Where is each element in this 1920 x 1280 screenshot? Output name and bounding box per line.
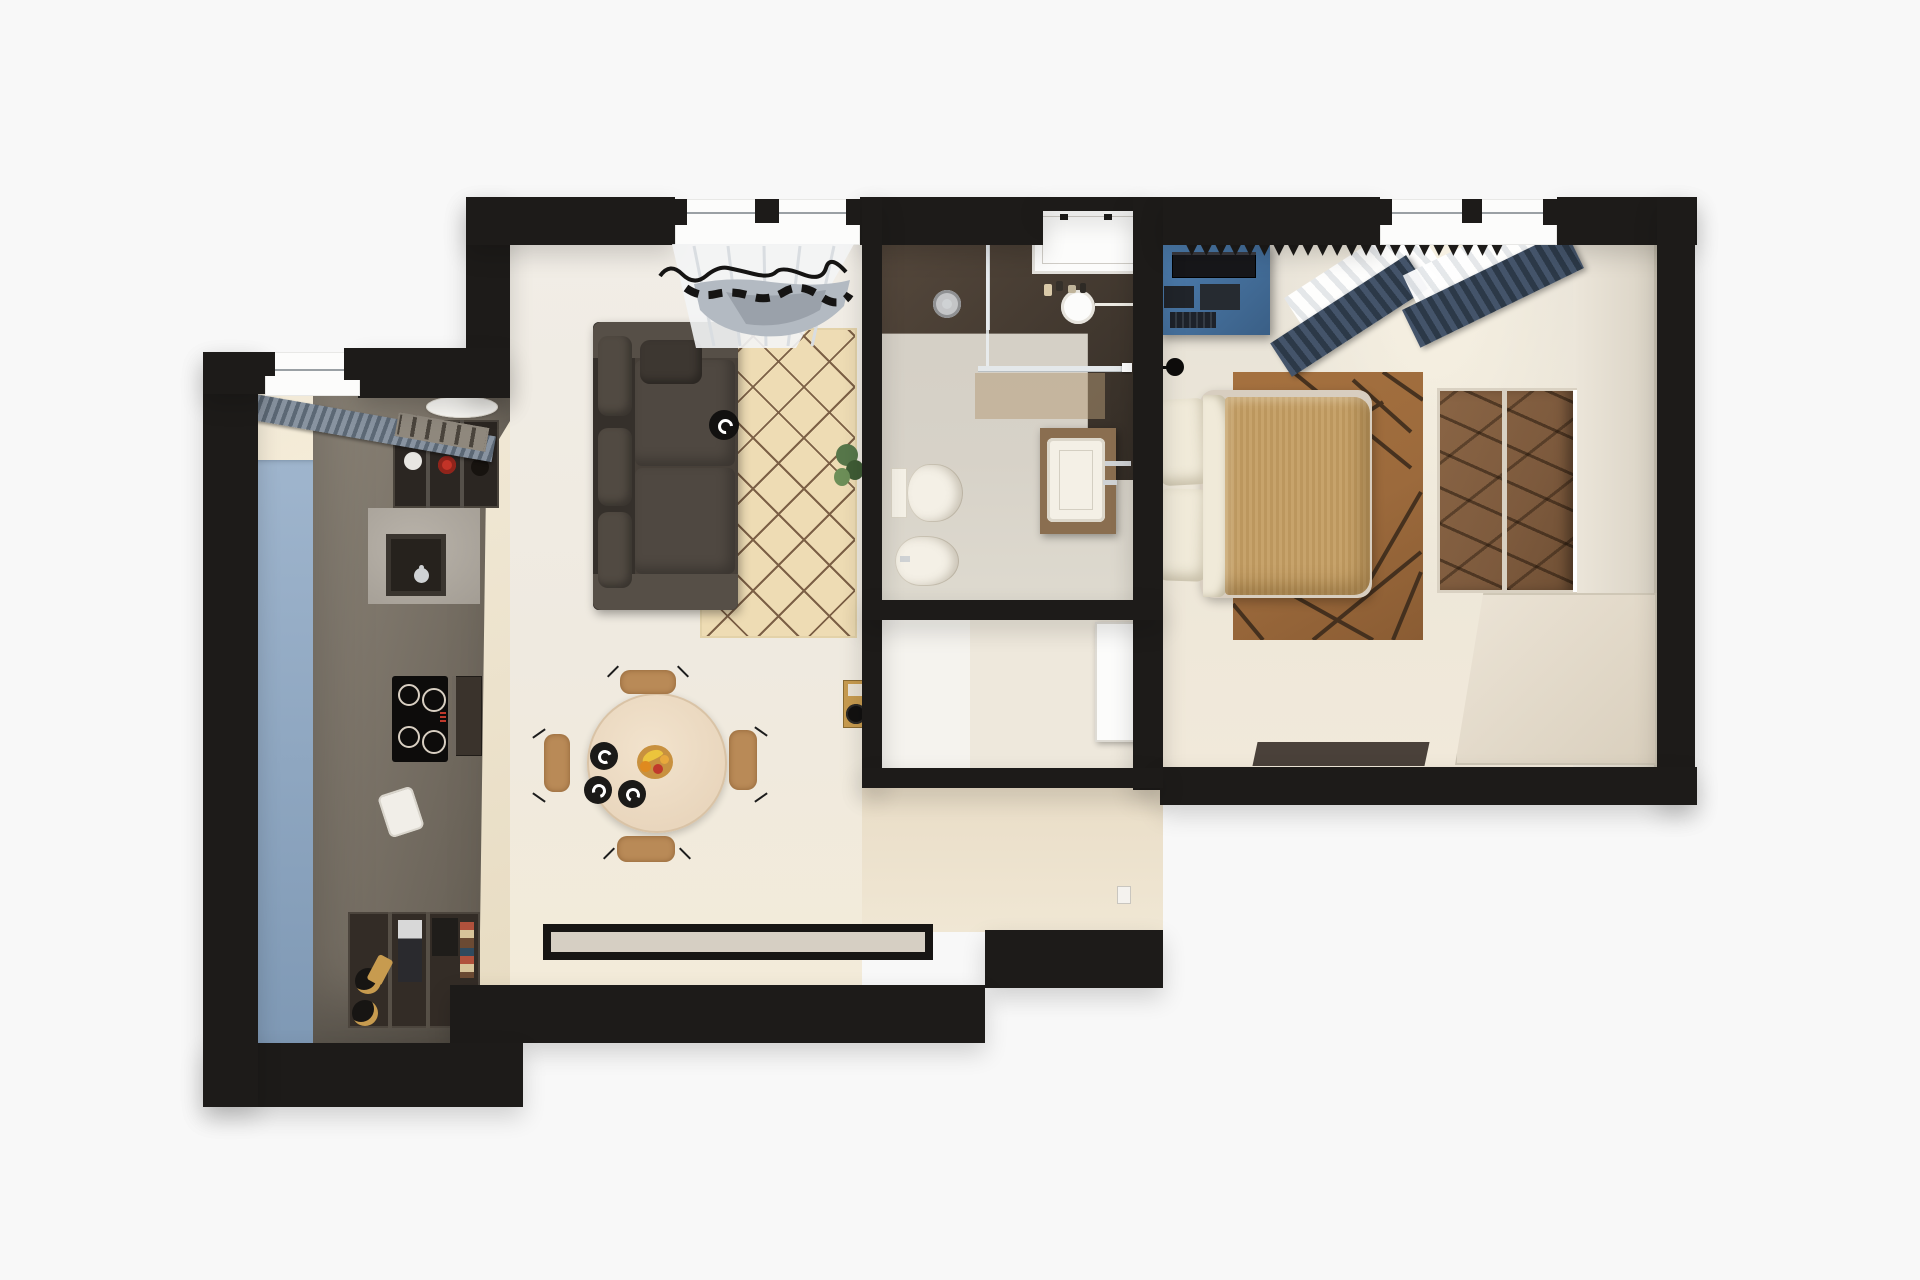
wall-hall-bottom: [985, 930, 1163, 988]
wall-living-bottom: [450, 985, 985, 1043]
window-mullion-notch: [1462, 199, 1482, 223]
small-appliance: [432, 918, 458, 956]
living-window-curtain: [636, 236, 886, 354]
mirror-edge-highlight: [1573, 390, 1577, 592]
cosmetic-jar: [1068, 285, 1076, 293]
orange: [640, 761, 651, 772]
window-jamb-notch: [1380, 199, 1392, 225]
wall-kitchen-top-a: [203, 352, 265, 394]
window-jamb-notch: [1543, 199, 1557, 225]
coffee-machine: [398, 920, 422, 982]
hallway-floor: [862, 788, 1163, 932]
wine-bottle-top: [352, 1000, 378, 1026]
toilet: [907, 464, 963, 522]
basin: [1047, 438, 1105, 522]
dining-chair-north: [620, 670, 676, 694]
induction-cooktop: [392, 676, 448, 762]
bidet-faucet: [900, 556, 910, 562]
wall-bedroom-right: [1657, 197, 1695, 805]
floor-plan-stage: ▼▼▼▼: [0, 0, 1920, 1280]
window-jamb-notch: [846, 199, 860, 225]
kitchen-sink: [386, 534, 446, 596]
runner-rug: [543, 924, 933, 960]
cosmetic-bottle: [1044, 284, 1052, 296]
round-mirror: [1061, 290, 1095, 324]
plant-leaf: [834, 468, 850, 486]
pillow: [1156, 488, 1209, 582]
wall-top-bath: [1040, 197, 1143, 211]
cosmetic-bottle: [1080, 283, 1086, 293]
wardrobe-lower-face: [1455, 593, 1657, 765]
shower-glass-vertical: [986, 240, 989, 370]
shower-tray: [975, 373, 1105, 419]
dining-chair-west: [544, 734, 570, 792]
sofa-pillow: [598, 512, 632, 588]
dinner-plate: [590, 742, 618, 770]
mirrored-wardrobe-doors: [1437, 388, 1577, 593]
bottle-red: [438, 456, 456, 474]
sofa-pillow: [598, 428, 632, 506]
wall-top-bedroom-a: [1163, 197, 1380, 245]
sofa-pillow: [598, 336, 632, 416]
round-ceiling-plate: [426, 396, 498, 418]
wall-top-living-b: [860, 197, 1043, 245]
wall-kitchen-top-b: [358, 348, 510, 398]
toilet-tank: [891, 468, 907, 518]
bottle-white: [404, 452, 422, 470]
window-jamb-notch: [265, 352, 275, 376]
duvet: [1225, 397, 1370, 595]
basin-faucet: [1105, 461, 1131, 466]
cosmetic-bottle: [1056, 281, 1063, 291]
storage-door-swing-area: [882, 620, 970, 768]
dark-floor-mat: [1252, 742, 1429, 766]
wall-bedroom-bottom: [1160, 767, 1697, 805]
cooktop-controls: [440, 712, 446, 724]
dinner-plate: [618, 780, 646, 808]
wall-bath-storage-divider: [862, 600, 1163, 620]
light-switch: [1117, 886, 1131, 904]
glass-door-handle: [1122, 363, 1132, 372]
orange: [660, 755, 669, 764]
kitchen-faucet: [414, 568, 429, 583]
window-jamb-notch: [675, 199, 687, 225]
basin-faucet-handle: [1103, 480, 1117, 485]
dining-chair-south: [617, 836, 675, 862]
wall-kitchen-left: [203, 352, 258, 1107]
sofa-seat-cushion: [635, 468, 735, 574]
decor-plate-glyph: [715, 416, 736, 437]
wall-bath-bedroom-divider: [1133, 197, 1163, 790]
dining-chair-east: [729, 730, 757, 790]
black-decor-plate: [709, 410, 739, 440]
window-handle: [1104, 214, 1112, 220]
fruit-bowl: [637, 745, 673, 779]
shower-head: [933, 290, 961, 318]
apple: [653, 764, 663, 774]
desk-gadget: [1164, 286, 1194, 308]
shower-glass-partition: [978, 366, 1130, 371]
window-mullion-notch: [755, 199, 779, 223]
dinner-plate: [584, 776, 612, 804]
books: [460, 922, 474, 978]
mirror-arm: [1095, 303, 1133, 306]
wall-storage-bottom: [862, 768, 1163, 788]
window-handle: [1060, 214, 1068, 220]
wardrobe-door-gap: [1502, 388, 1507, 593]
keyboard: [1170, 312, 1216, 328]
desk-gadget: [1200, 284, 1240, 310]
bathroom-window: [1032, 206, 1144, 274]
built-in-oven: [452, 676, 482, 756]
window-jamb-notch: [344, 348, 360, 380]
